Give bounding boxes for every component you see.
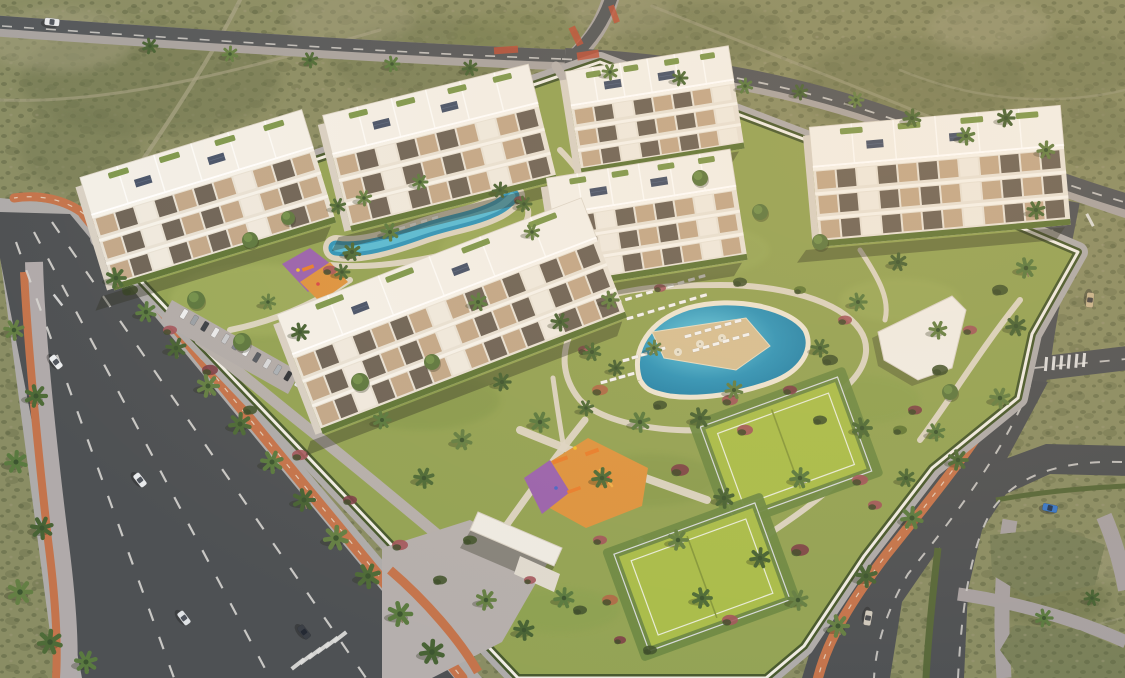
shrub-shadow [343,499,351,505]
palm-crown [854,98,858,102]
shrub-shadow [163,329,171,335]
shrub-shadow [868,504,876,510]
shrub-shadow [813,419,821,425]
palm-crown [460,438,465,443]
car-windshield [49,19,55,25]
balcony-bay [594,104,614,121]
palm-crown [380,418,384,422]
palm-crown [584,406,588,410]
residential-complex-scene [0,0,1125,678]
palm-crown [228,52,232,56]
balcony-bay [923,210,943,229]
shrub-shadow [893,429,901,435]
palm-crown [302,498,307,503]
balcony-bay [714,191,734,210]
palm-crown [397,611,403,617]
shrub-shadow [852,479,861,485]
parasol-pole [699,343,701,345]
shrub-shadow [323,269,331,275]
balcony-bay [939,159,959,178]
balcony-bay [575,107,595,124]
balcony-bay [816,170,836,189]
palm-crown [266,300,270,304]
palm-crown [910,116,914,120]
palm-crown [798,90,802,94]
shrub-shadow [932,369,941,375]
palm-crown [1024,266,1029,271]
balcony-bay [1045,200,1065,219]
palm-crown [468,66,472,70]
balcony-bay [980,156,1000,175]
balcony-bay [701,240,721,259]
palm-crown [856,300,860,304]
shrub-shadow [593,539,601,545]
balcony-bay [882,214,902,233]
balcony-bay [1023,177,1043,196]
palm-crown [476,300,480,304]
palm-crown [362,196,366,200]
shrub-shadow [243,409,251,415]
balcony-bay [718,214,738,233]
balcony-bay [941,184,961,203]
vegetation-patch [928,2,1052,54]
balcony-bay [639,227,659,246]
palm-crown [174,346,179,351]
play-equipment [316,282,320,286]
shrub-shadow [602,599,611,605]
shrub-shadow [671,469,681,476]
balcony-bay [721,237,741,256]
balcony-bay [635,204,655,223]
palm-crown [308,58,312,62]
balcony-bay [920,186,940,205]
shrub-shadow [963,329,971,335]
balcony-bay [1004,203,1024,222]
palm-crown [388,230,392,234]
palm-crown [904,476,908,480]
palm-crown [818,346,822,350]
shrub-shadow [838,319,846,325]
balcony-bay [699,131,719,148]
shrub-shadow [783,389,791,395]
car-windshield [1087,297,1093,303]
palm-crown [600,476,605,481]
balcony-bay [615,207,635,226]
balcony-bay [837,168,857,187]
palm-crown [522,628,527,633]
shrub-shadow [822,359,831,365]
palm-crown [700,596,705,601]
palm-crown [530,230,534,234]
palm-crown [47,639,53,645]
balcony-bay [673,92,693,109]
balcony-bay [898,163,918,182]
palm-crown [390,62,394,66]
balcony-bay [578,128,598,145]
palm-crown [936,328,940,332]
palm-crown [340,270,344,274]
palm-crown [590,350,594,354]
palm-crown [678,76,682,80]
balcony-bay [662,247,682,266]
palm-crown [12,328,17,333]
palm-crown [298,330,302,334]
palm-crown [558,320,562,324]
tree-highlight [189,292,199,302]
shrub-shadow [737,429,746,435]
shrub-shadow [722,619,731,625]
palm-crown [1004,116,1008,120]
palm-crown [732,388,736,392]
palm-crown [910,516,915,521]
tree-highlight [235,334,245,344]
palm-crown [40,526,45,531]
balcony-bay [818,195,838,214]
balcony-bay [1002,179,1022,198]
balcony-bay [619,230,639,249]
balcony-bay [676,113,696,130]
palm-crown [114,276,119,281]
tree-highlight [814,235,823,244]
palm-crown [538,420,543,425]
shrub-shadow [292,454,301,460]
palm-crown [608,70,612,74]
palm-crown [722,496,727,501]
tree-highlight [694,171,703,180]
balcony-bay [719,128,739,145]
balcony-bay [694,195,714,214]
shrub-shadow [794,289,801,294]
balcony-bay [653,95,673,112]
balcony-bay [622,253,642,272]
tree-highlight [754,205,763,214]
palm-crown [743,84,747,88]
balcony-bay [656,116,676,133]
palm-crown [148,44,152,48]
shrub-shadow [524,579,531,584]
palm-crown [484,598,489,603]
balcony-bay [859,191,879,210]
balcony-bay [633,98,653,115]
balcony-bay [674,198,694,217]
shrub-shadow [614,639,621,644]
shrub-shadow [463,539,471,545]
palm-crown [1090,596,1094,600]
balcony-bay [857,166,877,185]
palm-crown [365,573,371,579]
palm-crown [562,596,567,601]
shrub-shadow [992,289,1001,295]
palm-crown [1044,148,1048,152]
balcony-bay [961,182,981,201]
balcony-bay [617,122,637,139]
balcony-bay [1000,154,1020,173]
play-equipment [296,268,300,272]
palm-crown [698,416,703,421]
shrub-shadow [392,544,401,550]
balcony-bay [597,125,617,142]
palm-crown [796,598,801,603]
palm-crown [429,649,435,655]
palm-crown [676,538,681,543]
balcony-bay [679,134,699,151]
palm-crown [498,188,502,192]
shrub-shadow [791,549,801,556]
balcony-bay [581,150,601,167]
balcony-bay [658,224,678,243]
tree-highlight [282,212,290,220]
balcony-bay [655,201,675,220]
palm-crown [1014,324,1019,329]
balcony-bay [599,233,619,252]
shrub-shadow [433,579,441,585]
parasol-pole [677,351,679,353]
balcony-bay [640,140,660,157]
palm-crown [860,426,865,431]
palm-crown [1034,208,1038,212]
balcony-bay [692,89,712,106]
balcony-bay [637,119,657,136]
palm-crown [238,422,243,427]
balcony-bay [943,209,963,228]
palm-crown [422,476,427,481]
palm-crown [638,420,643,425]
palm-crown [418,180,422,184]
balcony-bay [839,193,859,212]
palm-crown [614,366,618,370]
palm-crown [522,202,526,206]
balcony-bay [678,221,698,240]
palm-crown [836,624,841,629]
palm-crown [84,660,89,665]
palm-crown [934,430,938,434]
palm-crown [1042,616,1046,620]
play-equipment [554,486,558,490]
shrub-shadow [592,389,601,395]
palm-crown [864,574,869,579]
play-equipment [573,446,577,450]
balcony-bay [712,85,732,102]
palm-crown [652,346,656,350]
balcony-bay [982,180,1002,199]
shrub-shadow [653,404,661,410]
balcony-bay [660,137,680,154]
balcony-bay [614,101,634,118]
shrub-shadow [908,409,916,415]
palm-crown [14,460,19,465]
palm-crown [144,310,149,315]
balcony-bay [959,157,979,176]
tree-highlight [944,385,953,394]
tree-highlight [353,374,363,384]
balcony-bay [601,146,621,163]
balcony-bay [696,110,716,127]
balcony-bay [984,205,1004,224]
aerial-render-image [0,0,1125,678]
car-windshield [865,615,871,621]
tree-highlight [426,355,435,364]
balcony-bay [841,217,861,236]
balcony-bay [1043,175,1063,194]
palm-crown [998,396,1003,401]
palm-crown [350,250,354,254]
palm-crown [336,204,340,208]
balcony-bay [595,210,615,229]
parasol-pole [721,337,723,339]
balcony-bay [902,212,922,231]
balcony-bay [620,143,640,160]
shrub-shadow [573,609,581,615]
shrub-shadow [643,649,651,655]
balcony-bay [861,216,881,235]
palm-crown [206,384,211,389]
palm-crown [270,460,275,465]
palm-crown [896,260,900,264]
palm-crown [798,476,803,481]
palm-crown [608,298,612,302]
palm-crown [17,589,23,595]
balcony-bay [963,207,983,226]
balcony-bay [642,250,662,269]
shrub-shadow [733,281,741,287]
balcony-bay [682,243,702,262]
palm-crown [34,394,39,399]
palm-crown [500,380,504,384]
palm-crown [964,134,968,138]
balcony-bay [877,165,897,184]
palm-crown [956,458,961,463]
balcony-bay [715,107,735,124]
balcony-bay [900,187,920,206]
shrub-shadow [722,399,731,405]
tree-highlight [244,233,253,242]
balcony-bay [880,189,900,208]
balcony-bay [698,217,718,236]
palm-crown [333,535,339,541]
palm-crown [758,556,763,561]
balcony-bay [918,161,938,180]
